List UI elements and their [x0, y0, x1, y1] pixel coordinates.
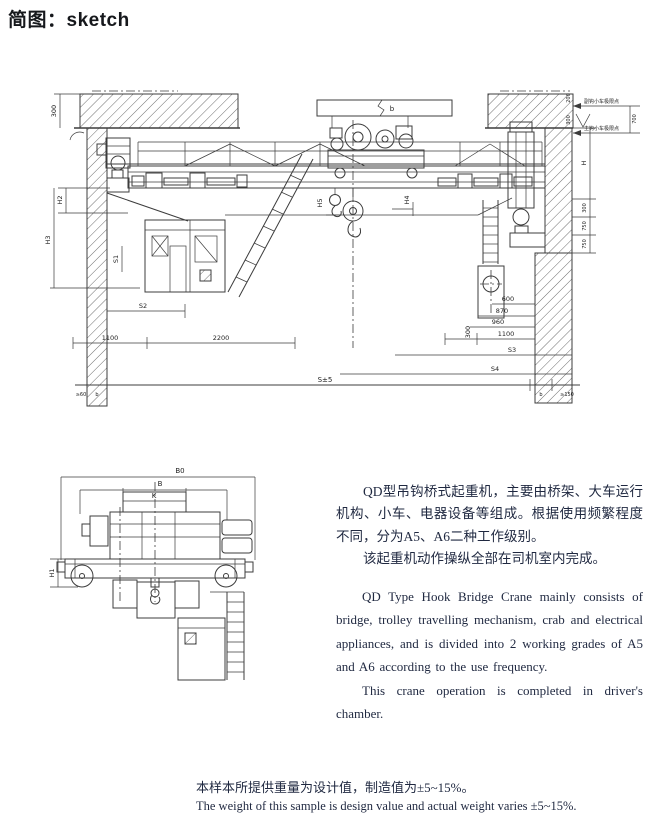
dim-label: H2 — [56, 195, 64, 204]
dim-label: ≥150 — [560, 392, 574, 398]
dim-label: 200 — [566, 93, 572, 103]
dim-label: S±5 — [318, 376, 333, 384]
dim-label: 600 — [502, 295, 514, 303]
dim-label: 300 — [582, 203, 588, 213]
description-zh-paragraph: QD型吊钩桥式起重机，主要由桥架、大车运行机构、小车、电器设备等组成。根据使用频… — [336, 481, 643, 548]
dim-label: H4 — [403, 195, 411, 204]
dim-label: H1 — [48, 568, 56, 577]
ceiling-right — [485, 91, 590, 128]
ladder-right — [483, 200, 498, 264]
dim-label: 700 — [632, 114, 638, 124]
description-en-paragraph: This crane operation is completed in dri… — [336, 679, 643, 726]
dim-label: S2 — [139, 302, 147, 310]
dim-label: H — [580, 160, 588, 165]
dim-label: b — [539, 392, 542, 398]
cab-side — [178, 618, 225, 680]
left-wall — [87, 128, 107, 406]
travel-mechanism-right — [438, 174, 532, 188]
dim-label: H3 — [44, 235, 52, 244]
dim-label: S3 — [508, 346, 516, 354]
dim-label: b — [390, 105, 395, 113]
dim-label: 300 — [50, 105, 58, 117]
dim-label: 1100 — [102, 334, 119, 342]
driver-cab — [145, 220, 225, 292]
dim-label: 300 — [566, 115, 572, 125]
dim-label: 960 — [492, 318, 504, 326]
front-elevation-drawing: 300 — [40, 78, 645, 430]
platform-members — [107, 193, 512, 221]
dim-label: S1 — [112, 255, 120, 263]
dim-label: B — [158, 480, 163, 488]
travel-wheels — [71, 565, 237, 587]
catalog-page: 简图：sketch 300 — [0, 0, 649, 833]
ladder-side — [210, 592, 244, 680]
dims-span: S±5 ≥60 b b ≥150 — [75, 376, 580, 398]
ceiling-left — [74, 91, 240, 128]
dims-wall-right: H 300 750 750 — [572, 128, 596, 253]
annotations-top-right: 副钩小车极限点 主钩小车极限点 200 300 700 — [566, 93, 640, 136]
dim-label: S4 — [491, 365, 499, 373]
right-wall — [535, 128, 572, 403]
hoist-hooks: H5 H4 — [316, 120, 413, 348]
footnote-en: The weight of this sample is design valu… — [196, 799, 646, 814]
side-view-drawing: B0 B K — [30, 452, 320, 710]
walkway-railing — [138, 142, 542, 166]
dims-left: H2 H3 S1 S2 1100 2200 — [44, 188, 295, 349]
trolley-side — [82, 482, 252, 602]
page-title: 简图：sketch — [8, 5, 130, 32]
description-block: QD型吊钩桥式起重机，主要由桥架、大车运行机构、小车、电器设备等组成。根据使用频… — [336, 481, 643, 725]
dim-label: K — [152, 492, 157, 500]
dim-300-top-left: 300 — [50, 94, 84, 140]
dim-label: 2200 — [213, 334, 230, 342]
bridge-girder — [107, 164, 545, 188]
dim-label: 870 — [496, 307, 508, 315]
weight-footnote: 本样本所提供重量为设计值，制造值为±5~15%。 The weight of t… — [196, 777, 646, 814]
description-zh-paragraph: 该起重机动作操纵全部在司机室内完成。 — [336, 548, 643, 570]
dim-label: 750 — [582, 221, 588, 231]
dim-label: ≥60 — [76, 392, 87, 398]
dim-label: H5 — [316, 198, 324, 207]
dim-label: 300 — [464, 326, 472, 338]
dim-label: B0 — [175, 467, 184, 475]
dim-label: 1100 — [498, 330, 515, 338]
annotation-label: 副钩小车极限点 — [584, 98, 619, 105]
annotation-label: 主钩小车极限点 — [584, 125, 619, 132]
description-en-paragraph: QD Type Hook Bridge Crane mainly consist… — [336, 585, 643, 679]
dim-label: 750 — [582, 239, 588, 249]
dim-label: b — [95, 392, 98, 398]
underslung-boxes — [113, 580, 199, 618]
travel-mechanism-left — [132, 173, 247, 188]
footnote-zh: 本样本所提供重量为设计值，制造值为±5~15%。 — [196, 777, 646, 796]
